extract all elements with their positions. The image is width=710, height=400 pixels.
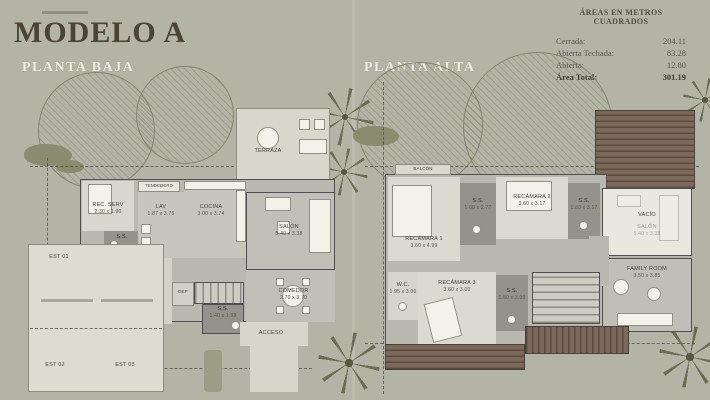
room-comedor	[246, 270, 335, 322]
shrub-icon	[353, 126, 399, 146]
row-value: 204.11	[663, 35, 686, 47]
bed-icon	[392, 185, 432, 237]
chair-icon	[302, 306, 310, 314]
planter-icon	[204, 350, 222, 392]
stool-icon	[299, 119, 310, 130]
floor-plan-sheet: MODELO A PLANTA BAJA PLANTA ALTA ÁREAS E…	[0, 0, 710, 400]
coffee-table-icon	[277, 221, 290, 234]
table-icon	[647, 287, 661, 301]
toilet-icon	[472, 225, 481, 234]
room-wc	[388, 272, 418, 320]
table-row: Cerrada: 204.11	[552, 35, 690, 47]
ghost-sofa-icon	[617, 195, 641, 207]
row-value: 301.19	[663, 71, 686, 83]
area-table-title: ÁREAS EN METROS CUADRADOS	[552, 8, 690, 26]
counter-icon	[184, 181, 246, 190]
room-dep	[172, 282, 194, 306]
toilet-icon	[507, 315, 516, 324]
stairs	[532, 272, 600, 324]
lounger-icon	[299, 139, 327, 154]
toilet-icon	[231, 321, 240, 330]
plan-baja-title: PLANTA BAJA	[22, 60, 134, 76]
room-ss2-alta	[568, 183, 600, 239]
dashed-boundary	[383, 82, 384, 394]
roof-pergola	[525, 326, 629, 354]
palm-icon	[659, 326, 710, 388]
room-balcon	[395, 164, 451, 175]
room-recamara2	[496, 177, 568, 239]
chair-icon	[276, 306, 284, 314]
stool-icon	[314, 119, 325, 130]
table-icon	[257, 127, 279, 149]
row-value: 83.28	[667, 47, 686, 59]
bed-icon	[88, 184, 112, 214]
row-value: 12.80	[667, 59, 686, 71]
toilet-icon	[398, 302, 407, 311]
speed-bump	[41, 299, 93, 302]
room-ss-planta-baja	[202, 304, 244, 334]
washer-icon	[141, 224, 151, 234]
row-label: Cerrada:	[556, 35, 585, 47]
table-row: Abierta Techada: 83.28	[552, 47, 690, 59]
page-title: MODELO A	[14, 16, 186, 50]
room-salon	[246, 192, 335, 270]
chair-icon	[302, 278, 310, 286]
bed-icon	[424, 297, 463, 343]
speed-bump	[101, 299, 153, 302]
room-tendedero	[138, 181, 180, 192]
floor-plan-alta: BALCÓN RECÁMARA 1 3.60 x 4.99 S.S. 1.60 …	[357, 86, 705, 396]
stairs	[194, 282, 244, 304]
room-rec-serv	[82, 181, 134, 231]
bed-icon	[506, 181, 552, 211]
roof-slats	[385, 344, 525, 370]
chair-icon	[276, 278, 284, 286]
acceso-path	[250, 346, 298, 392]
acceso-path	[240, 322, 308, 346]
dashed-boundary	[30, 166, 244, 167]
counter-icon	[236, 190, 246, 242]
room-ss1-alta	[460, 183, 496, 245]
tree-icon	[38, 72, 155, 189]
tree-icon	[136, 66, 234, 164]
ghost-sofa-icon	[659, 195, 679, 241]
room-ss3-alta	[496, 275, 528, 331]
room-recamara3	[418, 272, 496, 346]
title-rule	[42, 11, 88, 14]
chair-icon	[613, 279, 629, 295]
room-cocina	[184, 181, 246, 258]
parking-area	[28, 244, 164, 392]
toilet-icon	[579, 221, 588, 230]
sofa-icon	[617, 313, 673, 326]
dining-table-icon	[282, 285, 304, 307]
floor-plan-baja: TERRAZA REC. SERV 2.30 x 1.90 S.S. TENDE…	[18, 86, 352, 396]
room-vacio	[602, 188, 692, 256]
roof-slats	[595, 110, 695, 189]
room-recamara1	[388, 177, 460, 261]
dashed-gate-line	[30, 328, 162, 329]
sofa-icon	[265, 197, 291, 211]
room-family	[602, 258, 692, 332]
sofa-icon	[309, 199, 331, 253]
